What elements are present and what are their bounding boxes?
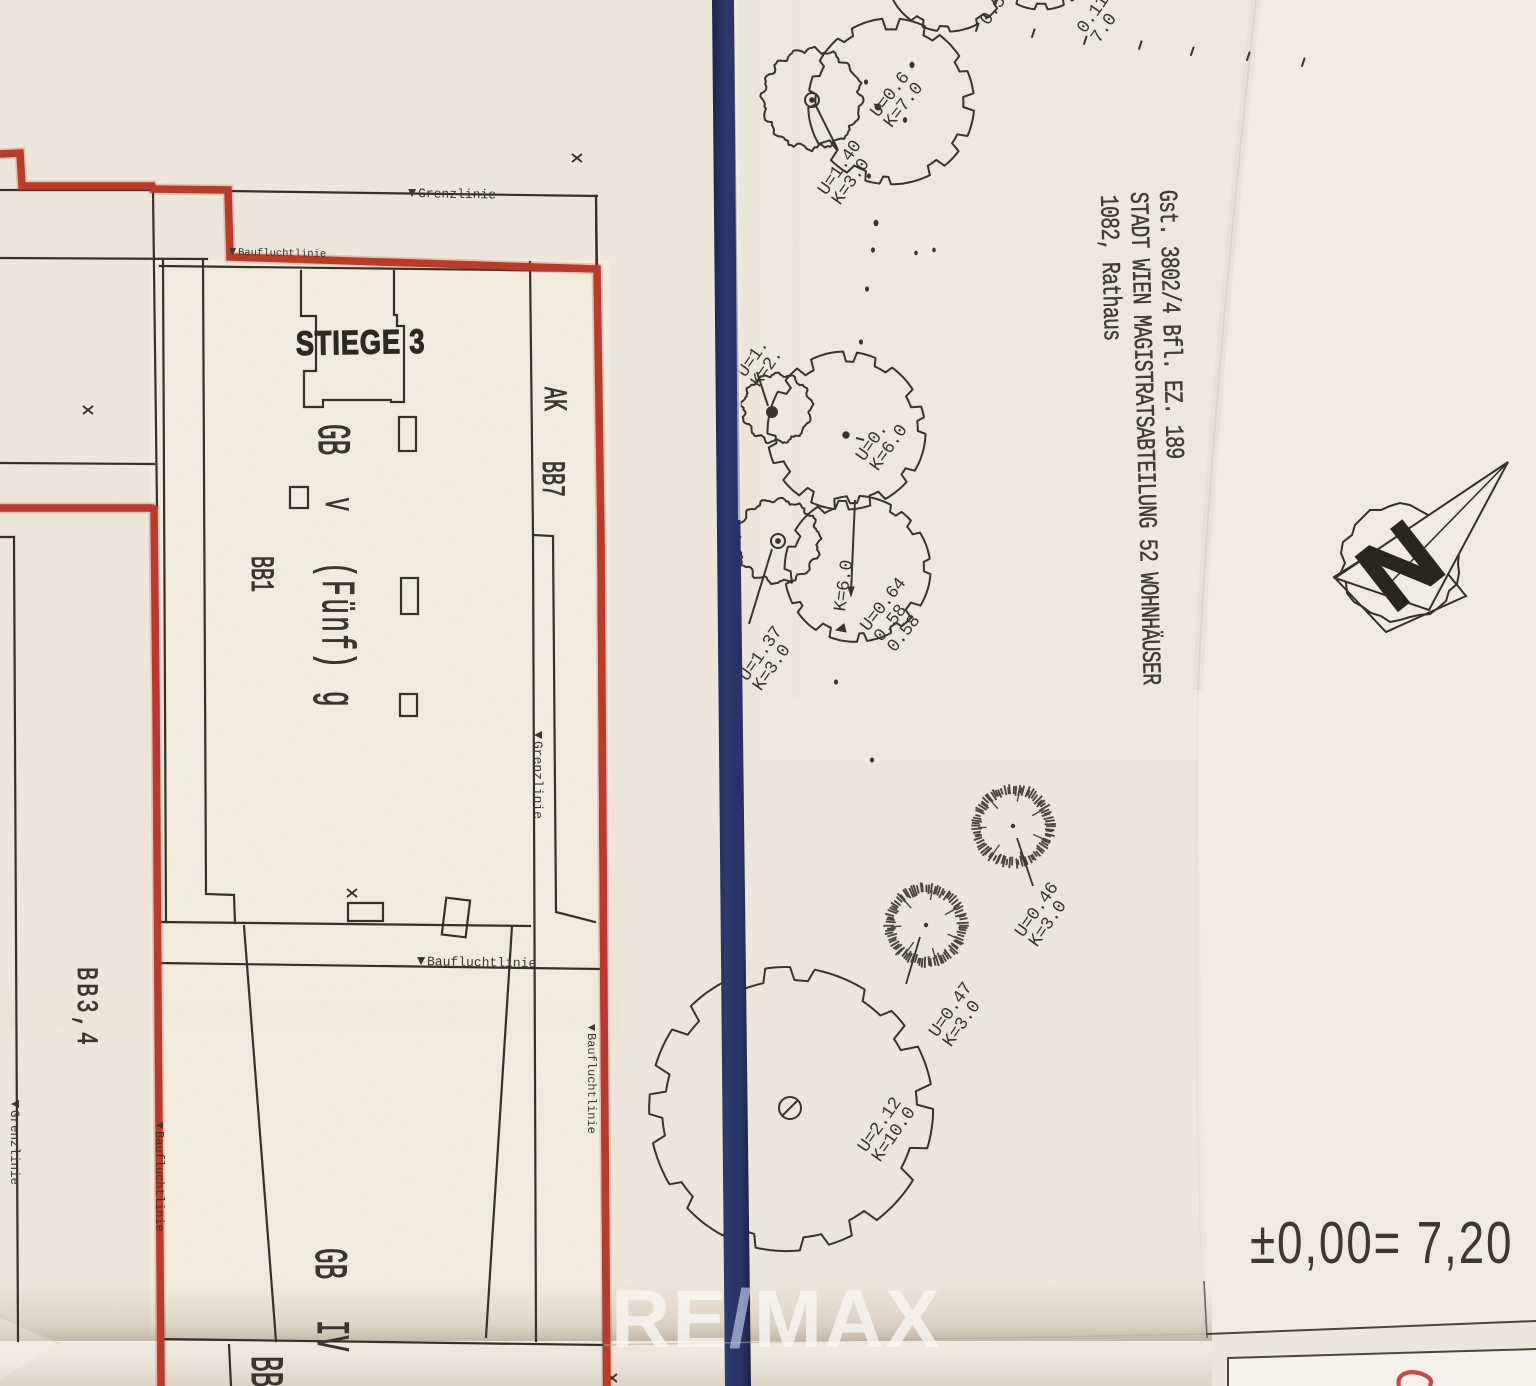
svg-text:IV: IV <box>303 1320 356 1351</box>
svg-text:GB: GB <box>304 424 357 455</box>
svg-text:BB3,4: BB3,4 <box>69 967 103 1048</box>
svg-text:Grenzlinie: Grenzlinie <box>530 741 545 819</box>
svg-text:Baufluchtlinie: Baufluchtlinie <box>427 954 536 971</box>
svg-text:GB: GB <box>301 1248 354 1279</box>
svg-text:BB7: BB7 <box>532 461 568 497</box>
svg-text:(Fünf): (Fünf) <box>308 562 361 671</box>
svg-text:±0,00= 7,20: ±0,00= 7,20 <box>1250 1210 1513 1276</box>
svg-text:Baufluchtlinie: Baufluchtlinie <box>584 1033 598 1134</box>
svg-text:V: V <box>315 498 355 511</box>
svg-text:g: g <box>308 691 361 707</box>
svg-text:RE/MAX: RE/MAX <box>611 1274 942 1365</box>
svg-text:Grenzlinie: Grenzlinie <box>418 186 496 202</box>
svg-text:Baufluchtlinie: Baufluchtlinie <box>152 1131 166 1232</box>
svg-text:BB1: BB1 <box>241 556 277 592</box>
svg-text:BB: BB <box>237 1356 290 1386</box>
svg-text:1082, Rathaus: 1082, Rathaus <box>1093 194 1126 340</box>
svg-text:Baufluchtlinie: Baufluchtlinie <box>238 247 326 261</box>
svg-text:AK: AK <box>534 387 570 411</box>
svg-text:Grenzlinie: Grenzlinie <box>7 1110 21 1185</box>
svg-text:STIEGE 3: STIEGE 3 <box>295 322 425 363</box>
